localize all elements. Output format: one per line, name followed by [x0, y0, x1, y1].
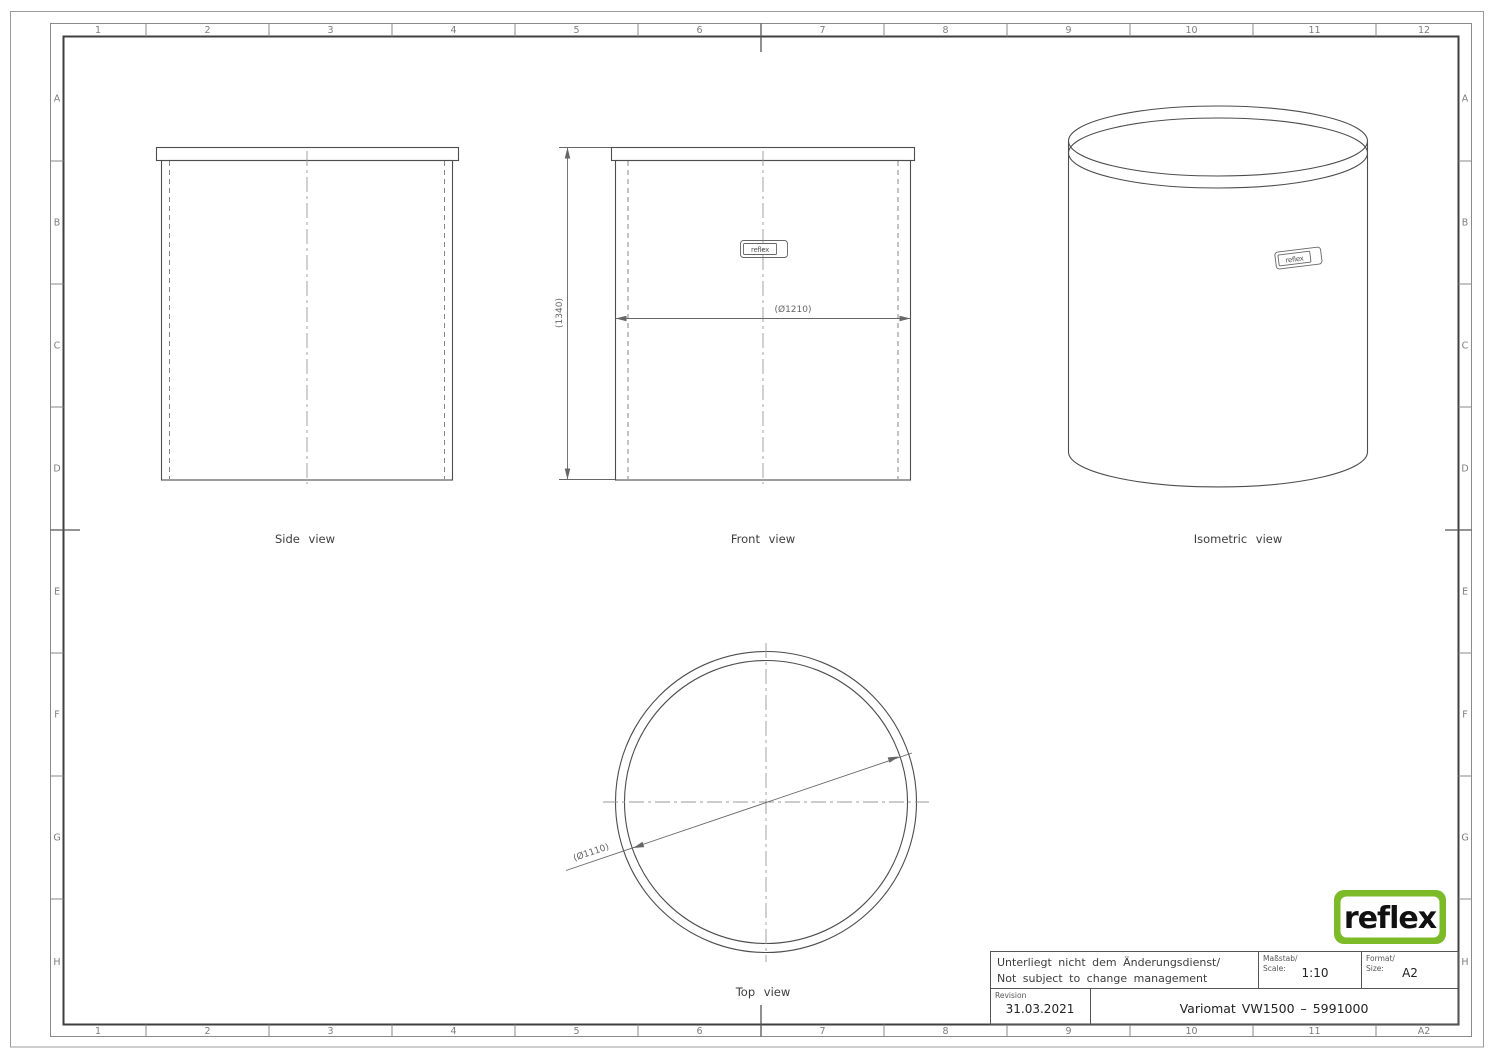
grid-ref-label: 1	[95, 25, 101, 36]
reflex-logo: reflex	[1334, 890, 1446, 944]
grid-ref-label: F	[1462, 710, 1467, 721]
reflex-nameplate: reflex	[741, 241, 788, 258]
grid-ref-label: 1	[95, 1026, 101, 1037]
grid-ref-label: 3	[327, 25, 333, 36]
grid-ref-label: 10	[1185, 25, 1197, 36]
logo-wordmark: reflex	[1344, 901, 1437, 936]
grid-ref-label: 9	[1065, 1026, 1071, 1037]
grid-ref-label: B	[1462, 218, 1469, 229]
grid-ref-label: 8	[942, 1026, 948, 1037]
grid-ref-label: 2	[204, 25, 210, 36]
height-dimension: (1340)	[555, 148, 615, 480]
grid-ref-label: 6	[696, 25, 702, 36]
grid-ref-label: 8	[942, 25, 948, 36]
grid-ref-label: D	[1461, 464, 1468, 475]
grid-ref-label: 12	[1418, 25, 1430, 36]
grid-ref-label: 3	[327, 1026, 333, 1037]
grid-ref-label: F	[54, 710, 59, 721]
grid-ref-label: 7	[819, 25, 825, 36]
grid-ref-label: C	[54, 341, 61, 352]
format-label-en: Size:	[1366, 964, 1384, 973]
format-label-de: Format/	[1366, 954, 1395, 963]
format-value: A2	[1402, 966, 1418, 980]
tank-bottom-edge	[1069, 452, 1368, 487]
grid-ref-label: 10	[1185, 1026, 1197, 1037]
front-view: reflex (1340) (Ø1210) Front view	[555, 148, 915, 547]
grid-ref-label: 2	[204, 1026, 210, 1037]
grid-ref-label: G	[53, 833, 60, 844]
side-view: Side view	[157, 148, 459, 547]
inner-diameter-text: (Ø1110)	[572, 841, 611, 863]
grid-ref-label: H	[1461, 957, 1468, 968]
tank-rim-outline	[157, 148, 459, 161]
grid-reference-ticks	[51, 24, 1472, 1037]
reflex-nameplate: reflex	[1275, 247, 1323, 269]
drawing-sheet: 1 2 3 4 5 6 7 8 9 10 11 12 1 2 3 4 5 6 7…	[0, 0, 1500, 1061]
revision-label: Revision	[995, 991, 1027, 1000]
grid-ref-label: H	[53, 957, 60, 968]
grid-ref-label: G	[1461, 833, 1468, 844]
change-note-en: Not subject to change management	[997, 972, 1208, 985]
scale-label-de: Maßstab/	[1263, 954, 1298, 963]
grid-ref-label: E	[54, 587, 60, 598]
grid-ref-label: E	[1462, 587, 1468, 598]
grid-ref-label: 9	[1065, 25, 1071, 36]
grid-ref-label: 5	[573, 1026, 579, 1037]
grid-ref-label: 11	[1308, 25, 1320, 36]
grid-ref-label: 4	[450, 1026, 456, 1037]
grid-ref-label: B	[54, 218, 61, 229]
grid-ref-label: 5	[573, 25, 579, 36]
grid-ref-label: A2	[1418, 1026, 1431, 1037]
tank-top-rim	[1069, 106, 1368, 176]
grid-ref-label: D	[53, 464, 60, 475]
front-view-label: Front view	[731, 532, 795, 546]
sheet-borders	[11, 12, 1484, 1048]
scale-label-en: Scale:	[1263, 964, 1286, 973]
side-view-label: Side view	[275, 532, 335, 546]
grid-ref-label: 4	[450, 25, 456, 36]
grid-ref-label: 7	[819, 1026, 825, 1037]
scale-value: 1:10	[1302, 966, 1329, 980]
title-block: Unterliegt nicht dem Änderungsdienst/ No…	[991, 952, 1459, 1025]
isometric-view-label: Isometric view	[1194, 532, 1283, 546]
grid-ref-label: C	[1462, 341, 1469, 352]
nameplate-text: reflex	[751, 246, 769, 254]
revision-date: 31.03.2021	[1006, 1002, 1075, 1016]
grid-ref-label: A	[1462, 94, 1469, 105]
grid-ref-label: 6	[696, 1026, 702, 1037]
grid-ref-label: A	[54, 94, 61, 105]
centering-marks	[51, 24, 1472, 1037]
height-dimension-text: (1340)	[555, 298, 565, 328]
tank-rim-lower-edge	[1069, 118, 1368, 188]
drawing-title: Variomat VW1500 – 5991000	[1180, 1001, 1369, 1016]
grid-ref-label: 11	[1308, 1026, 1320, 1037]
isometric-view: reflex Isometric view	[1069, 106, 1368, 546]
inner-diameter-dimension: (Ø1110)	[566, 753, 912, 871]
top-view: (Ø1110) Top view	[566, 643, 929, 999]
top-view-label: Top view	[735, 985, 791, 999]
change-note-de: Unterliegt nicht dem Änderungsdienst/	[997, 956, 1220, 969]
diameter-dimension-text: (Ø1210)	[774, 304, 811, 315]
